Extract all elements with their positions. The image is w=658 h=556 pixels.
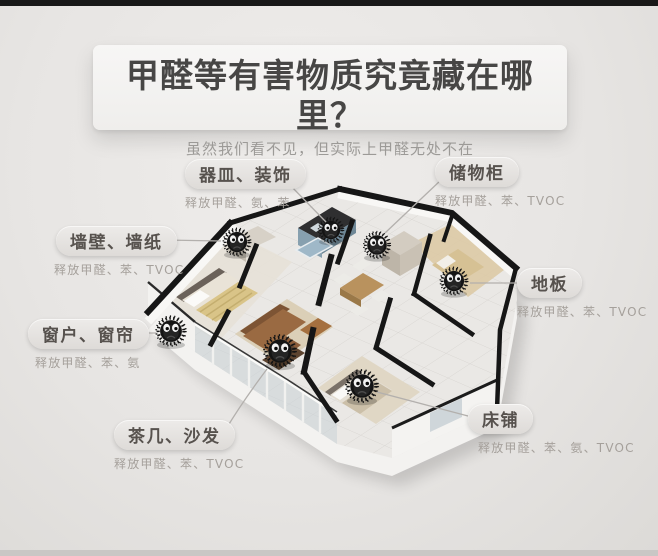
- label-bed-sub: 释放甲醛、苯、氨、TVOC: [478, 439, 635, 456]
- label-wall-pill: 墙壁、墙纸: [56, 226, 177, 256]
- label-window-curtain: 窗户、窗帘 释放甲醛、苯、氨: [28, 319, 149, 371]
- title-card: 甲醛等有害物质究竟藏在哪里？ 虽然我们看不见，但实际上甲醛无处不在: [93, 45, 567, 130]
- label-floor-sub: 释放甲醛、苯、TVOC: [517, 303, 647, 320]
- label-bed: 床铺 释放甲醛、苯、氨、TVOC: [468, 404, 635, 456]
- label-vessels-sub: 释放甲醛、氨、苯: [185, 194, 306, 211]
- label-cabinet-pill: 储物柜: [435, 157, 519, 187]
- label-window-pill: 窗户、窗帘: [28, 319, 149, 349]
- label-storage-cabinet: 储物柜 释放甲醛、苯、TVOC: [435, 157, 565, 209]
- label-bed-pill: 床铺: [468, 404, 533, 434]
- label-sofa-sub: 释放甲醛、苯、TVOC: [114, 455, 244, 472]
- bottom-strip: [0, 550, 658, 556]
- infographic-page: 甲醛等有害物质究竟藏在哪里？ 虽然我们看不见，但实际上甲醛无处不在 器皿、装饰 …: [0, 0, 658, 556]
- label-vessels-decorations: 器皿、装饰 释放甲醛、氨、苯: [185, 159, 306, 211]
- label-cabinet-sub: 释放甲醛、苯、TVOC: [435, 192, 565, 209]
- label-window-sub: 释放甲醛、苯、氨: [35, 354, 149, 371]
- label-wall-wallpaper: 墙壁、墙纸 释放甲醛、苯、TVOC: [56, 226, 184, 278]
- label-teatable-sofa: 茶几、沙发 释放甲醛、苯、TVOC: [114, 420, 244, 472]
- label-sofa-pill: 茶几、沙发: [114, 420, 235, 450]
- label-floor: 地板 释放甲醛、苯、TVOC: [517, 268, 647, 320]
- label-wall-sub: 释放甲醛、苯、TVOC: [54, 261, 184, 278]
- label-floor-pill: 地板: [517, 268, 582, 298]
- page-title: 甲醛等有害物质究竟藏在哪里？: [93, 56, 567, 135]
- label-vessels-pill: 器皿、装饰: [185, 159, 306, 189]
